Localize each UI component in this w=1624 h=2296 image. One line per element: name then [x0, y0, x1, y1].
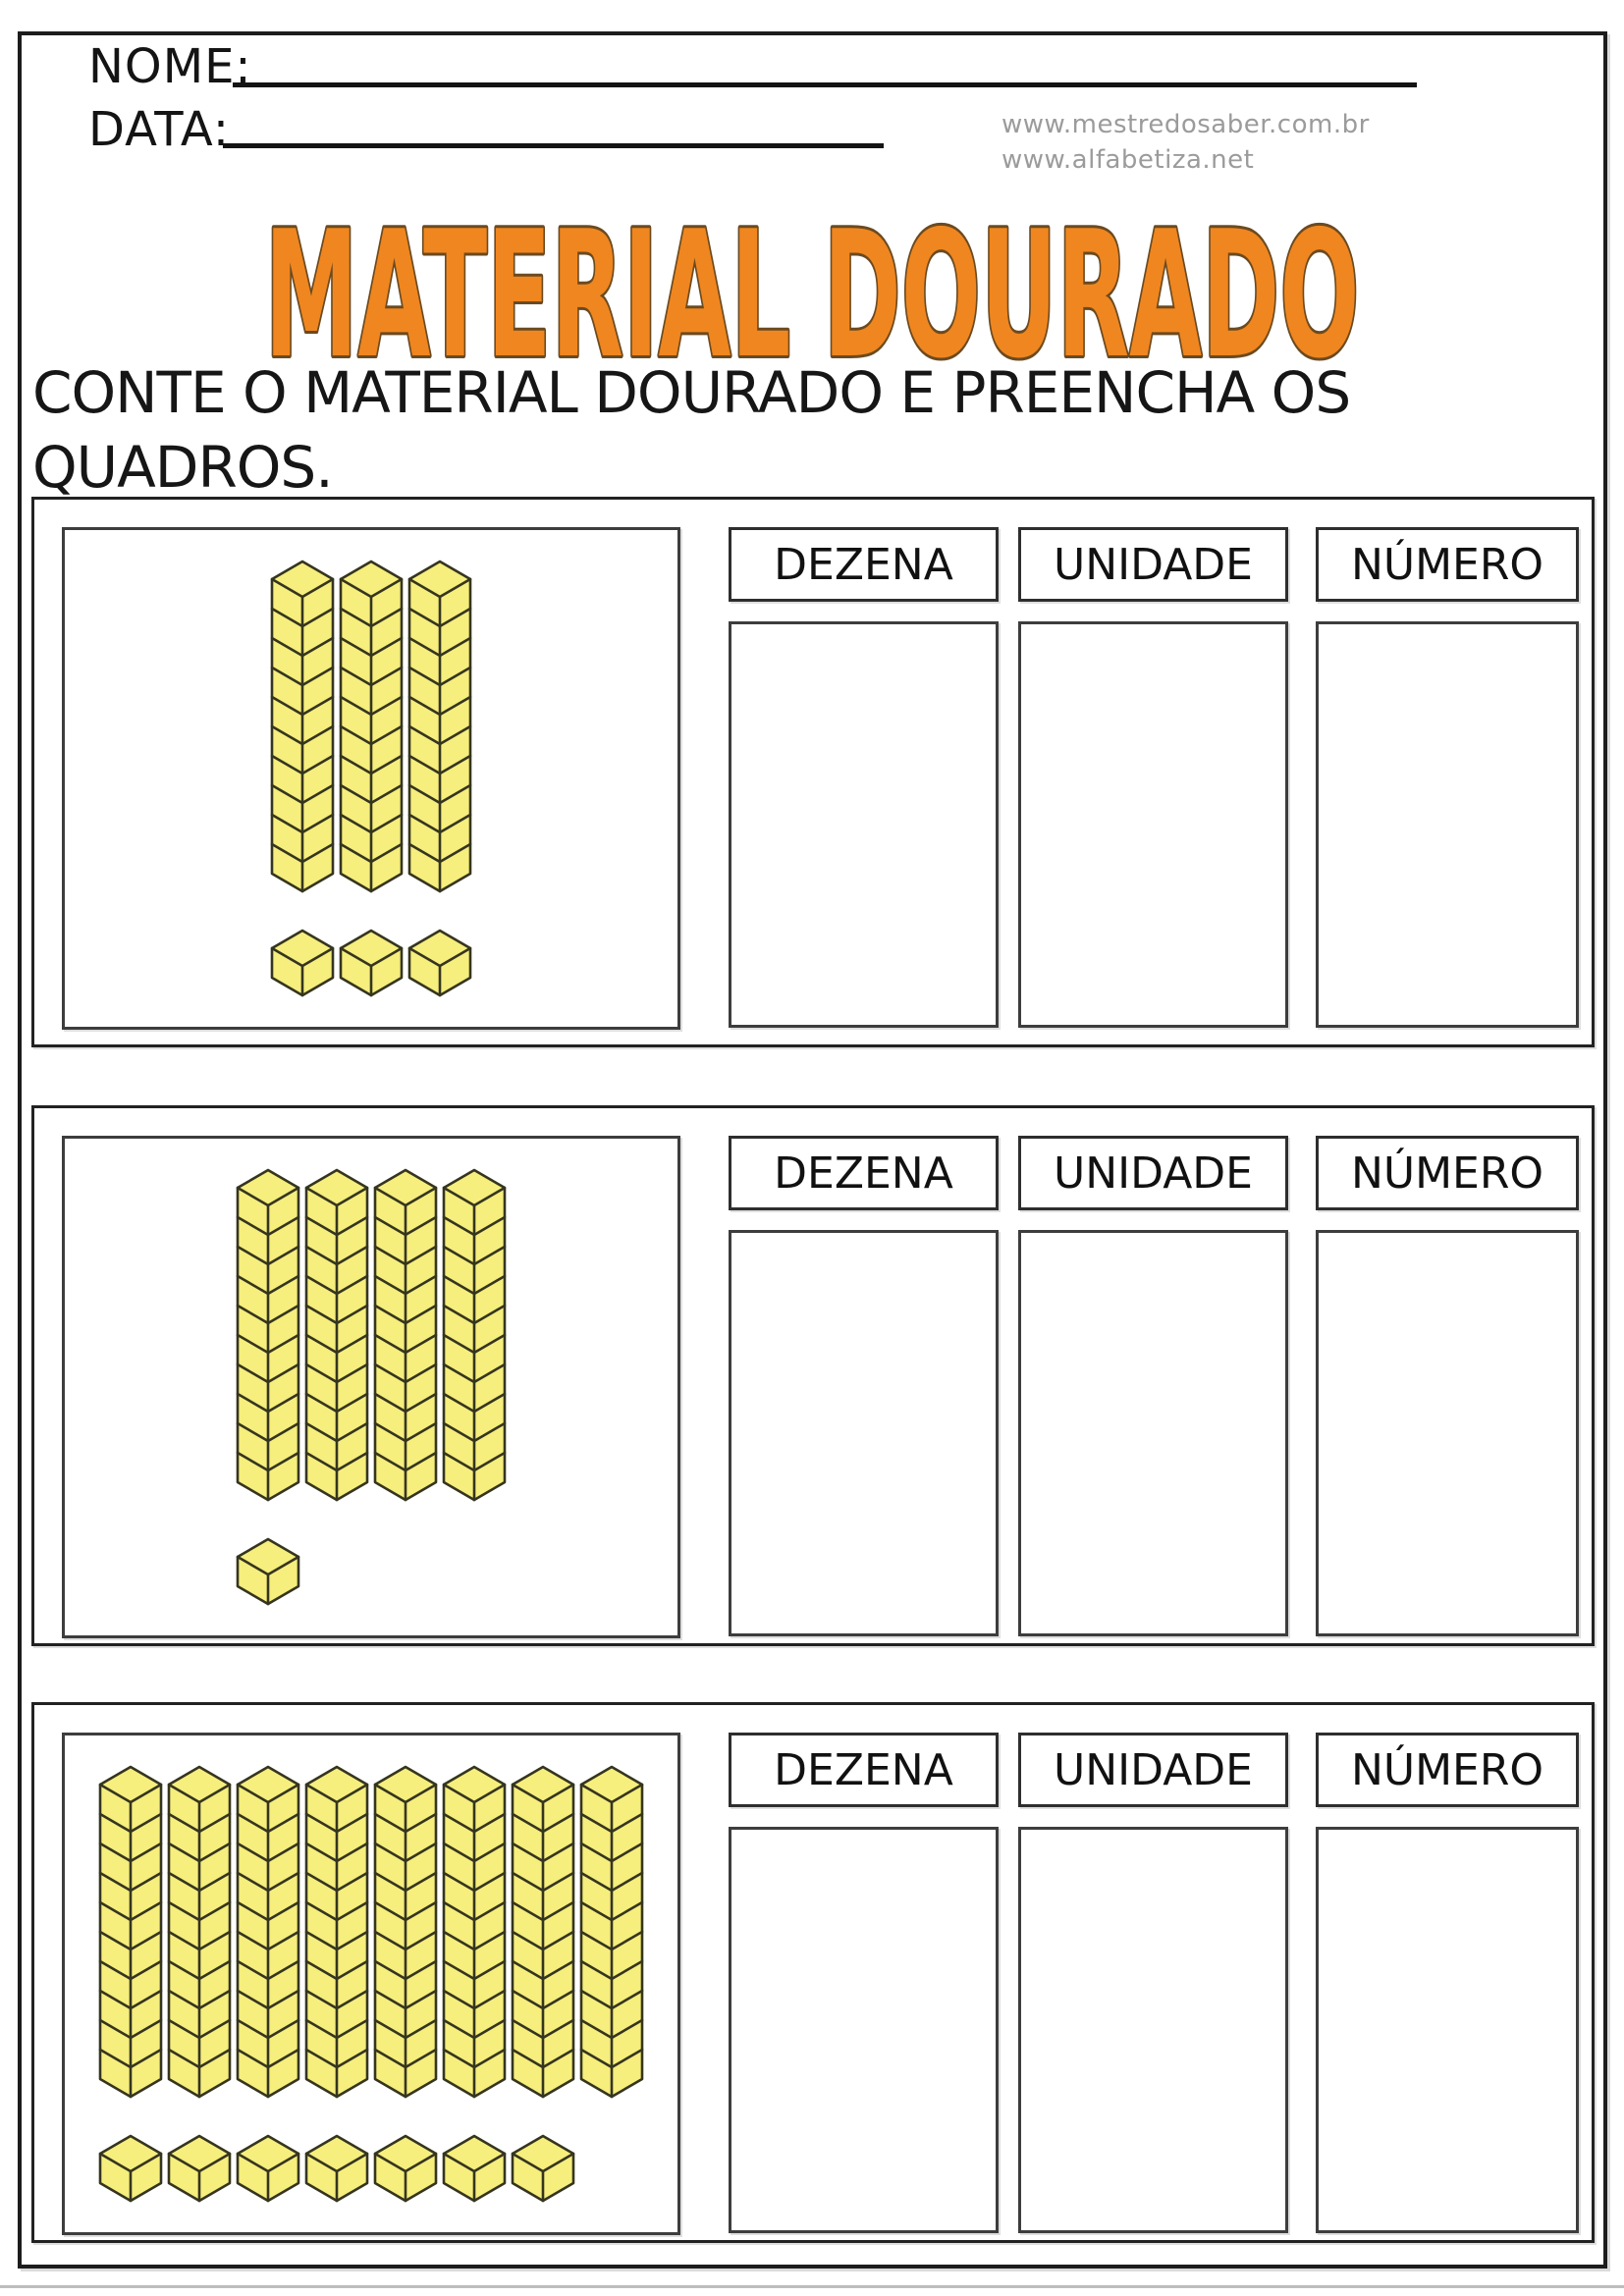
column-header-unidade: UNIDADE — [1018, 1733, 1288, 1807]
column-header-dezena: DEZENA — [729, 1136, 999, 1210]
column-header-numero: NÚMERO — [1316, 1733, 1579, 1807]
blocks-box-2 — [62, 1136, 680, 1638]
answer-box-numero[interactable] — [1316, 621, 1579, 1028]
column-header-unidade: UNIDADE — [1018, 1136, 1288, 1210]
column-header-unidade: UNIDADE — [1018, 527, 1288, 602]
blocks-box-1 — [62, 527, 680, 1030]
worksheet-title-art: MATERIAL DOURADO — [0, 147, 1624, 383]
answer-box-dezena[interactable] — [729, 621, 999, 1028]
instruction-line-1: CONTE O MATERIAL DOURADO E PREENCHA OS — [32, 355, 1350, 430]
column-header-dezena: DEZENA — [729, 1733, 999, 1807]
answer-box-unidade[interactable] — [1018, 1230, 1288, 1636]
answer-box-numero[interactable] — [1316, 1230, 1579, 1636]
website-url-1: www.mestredosaber.com.br — [1001, 110, 1370, 139]
base-ten-blocks-1 — [65, 530, 677, 1027]
blocks-box-3 — [62, 1733, 680, 2235]
column-header-numero: NÚMERO — [1316, 527, 1579, 602]
answer-box-unidade[interactable] — [1018, 621, 1288, 1028]
base-ten-blocks-3 — [65, 1735, 677, 2232]
instruction-text: CONTE O MATERIAL DOURADO E PREENCHA OS Q… — [32, 355, 1350, 505]
column-header-dezena: DEZENA — [729, 527, 999, 602]
exercise-section-2: DEZENA UNIDADE NÚMERO — [31, 1105, 1595, 1646]
answer-box-unidade[interactable] — [1018, 1827, 1288, 2233]
exercise-section-1: DEZENA UNIDADE NÚMERO — [31, 497, 1595, 1047]
answer-box-numero[interactable] — [1316, 1827, 1579, 2233]
scan-edge-line — [0, 2285, 1624, 2288]
name-write-line[interactable] — [233, 82, 1417, 87]
column-header-numero: NÚMERO — [1316, 1136, 1579, 1210]
base-ten-blocks-2 — [65, 1139, 677, 1635]
answer-box-dezena[interactable] — [729, 1827, 999, 2233]
instruction-line-2: QUADROS. — [32, 430, 1350, 505]
name-label: NOME: — [88, 39, 252, 94]
answer-box-dezena[interactable] — [729, 1230, 999, 1636]
exercise-section-3: DEZENA UNIDADE NÚMERO — [31, 1702, 1595, 2243]
